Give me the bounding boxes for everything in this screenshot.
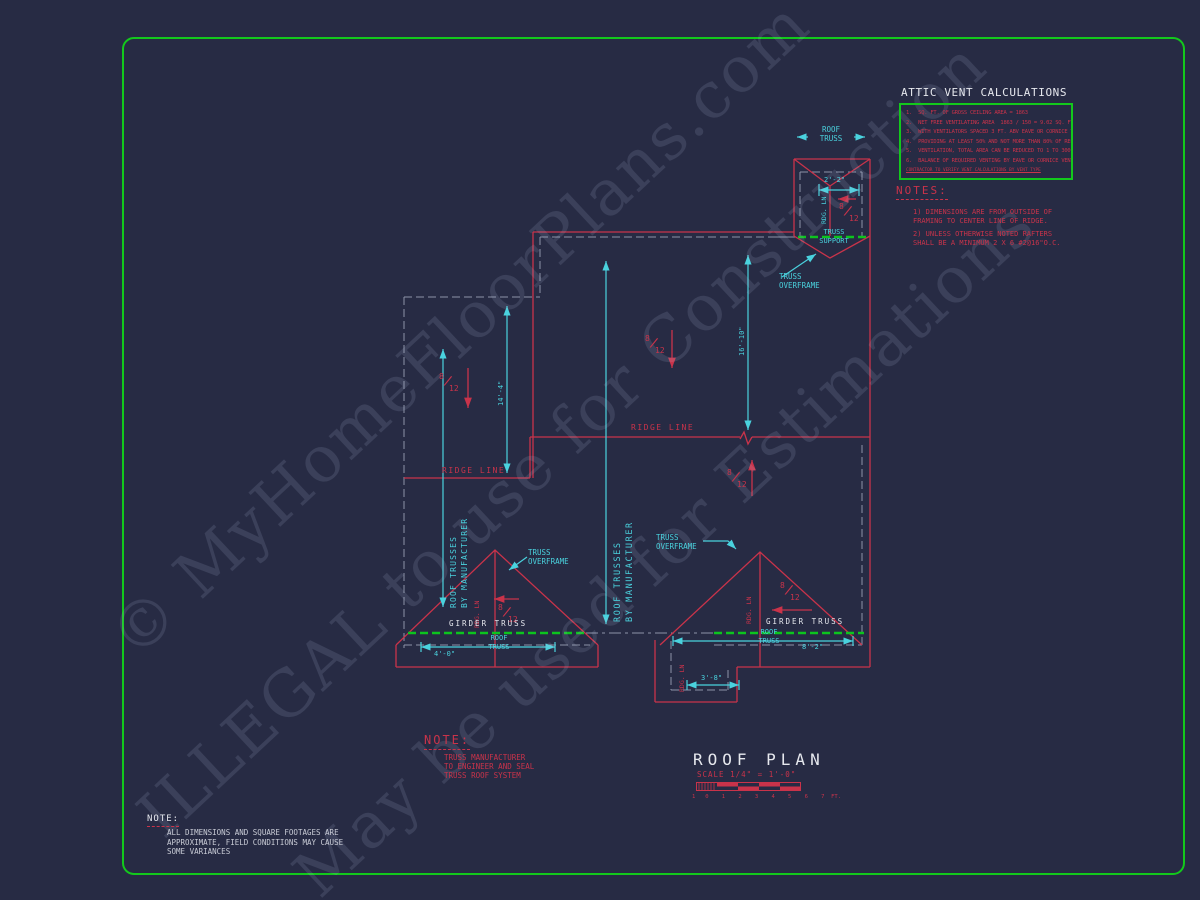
truss-overframe-label-center: TRUSS OVERFRAME xyxy=(656,533,697,551)
notes-item-2: 2) UNLESS OTHERWISE NOTED RAFTERS SHALL … xyxy=(913,230,1085,248)
bottom-note-title: NOTE: xyxy=(147,814,179,827)
attic-vent-line: 6. BALANCE OF REQUIRED VENTING BY EAVE O… xyxy=(906,157,1067,167)
pitch-8-12: 8/12 xyxy=(438,372,460,396)
truss-overframe-label-top: TRUSS OVERFRAME xyxy=(779,272,820,290)
attic-vent-title: ATTIC VENT CALCULATIONS xyxy=(901,86,1067,100)
roof-truss-top-label: ROOF TRUSS xyxy=(806,125,856,143)
attic-vent-line: 1. SQ. FT. OF GROSS CEILING AREA = 1863 xyxy=(906,109,1067,119)
pitch-8-12: 8/12 xyxy=(726,468,748,492)
dim-right-depth: 16'-10" xyxy=(737,326,748,356)
girder-truss-label-left: GIRDER TRUSS xyxy=(449,619,527,628)
attic-vent-box: 1. SQ. FT. OF GROSS CEILING AREA = 1863 … xyxy=(899,103,1073,180)
dimension-lines-cyan xyxy=(421,137,865,690)
ridge-line-short-label: RDG. LN xyxy=(819,197,830,224)
truss-support-label: TRUSS SUPPORT xyxy=(806,228,862,246)
roof-truss-label-left: ROOF TRUSS xyxy=(478,634,520,652)
dim-bay-width: 2'-2" xyxy=(824,176,845,185)
dim-left-depth: 14'-4" xyxy=(496,381,507,406)
dim-bump-width: 3'-8" xyxy=(701,674,722,683)
pitch-8-12: 8/12 xyxy=(644,334,666,358)
notes-title: NOTES: xyxy=(896,184,948,200)
roof-truss-label-right: ROOF TRUSS xyxy=(748,628,790,646)
drawing-scale: SCALE 1/4" = 1'-0" xyxy=(697,770,796,779)
center-note-body: TRUSS MANUFACTURER TO ENGINEER AND SEAL … xyxy=(444,753,534,780)
roof-trusses-by-manufacturer-left: ROOF TRUSSES BY MANUFACTURER xyxy=(448,518,470,608)
notes-item-1: 1) DIMENSIONS ARE FROM OUTSIDE OF FRAMIN… xyxy=(913,208,1085,226)
dim-right-truss: 8'-2" xyxy=(802,643,823,652)
bottom-note-body: ALL DIMENSIONS AND SQUARE FOOTAGES ARE A… xyxy=(167,828,343,857)
dim-left-truss: 4'-0" xyxy=(434,650,455,659)
girder-truss-lines-green xyxy=(408,237,866,633)
ridge-line-label-left: RIDGE LINE xyxy=(442,466,505,476)
roof-trusses-by-manufacturer-center: ROOF TRUSSES BY MANUFACTURER xyxy=(612,521,636,622)
pitch-8-12: 8/12 xyxy=(838,202,860,226)
pitch-8-12: 8/12 xyxy=(779,581,801,605)
girder-truss-label-right: GIRDER TRUSS xyxy=(766,617,844,626)
truss-overframe-label-left: TRUSS OVERFRAME xyxy=(528,548,569,566)
attic-vent-line: 3. WITH VENTILATORS SPACED 3 FT. ABV EAV… xyxy=(906,128,1067,138)
scale-ruler xyxy=(697,783,801,791)
attic-vent-line: 4. PROVIDING AT LEAST 50% AND NOT MORE T… xyxy=(906,138,1067,148)
attic-vent-line: 5. VENTILATION, TOTAL AREA CAN BE REDUCE… xyxy=(906,147,1067,157)
ridge-line-label-right: RIDGE LINE xyxy=(631,423,694,433)
attic-vent-footnote: CONTRACTOR TO VERIFY VENT CALCULATIONS B… xyxy=(906,167,1067,175)
attic-vent-line: 2. NET FREE VENTILATING AREA 1863 / 150 … xyxy=(906,119,1067,129)
scale-ruler-numbers: 1 0 1 2 3 4 5 6 7 FT. xyxy=(692,794,841,801)
center-note-title: NOTE: xyxy=(424,733,470,750)
ridge-line-short-label: RDG. LN xyxy=(677,665,688,692)
ridge-line-short-label: RDG. LN xyxy=(744,597,755,624)
drawing-title: ROOF PLAN xyxy=(693,750,825,770)
blueprint-sheet: © MyHomeFloorPlans.com ILLEGAL to use fo… xyxy=(0,0,1200,900)
